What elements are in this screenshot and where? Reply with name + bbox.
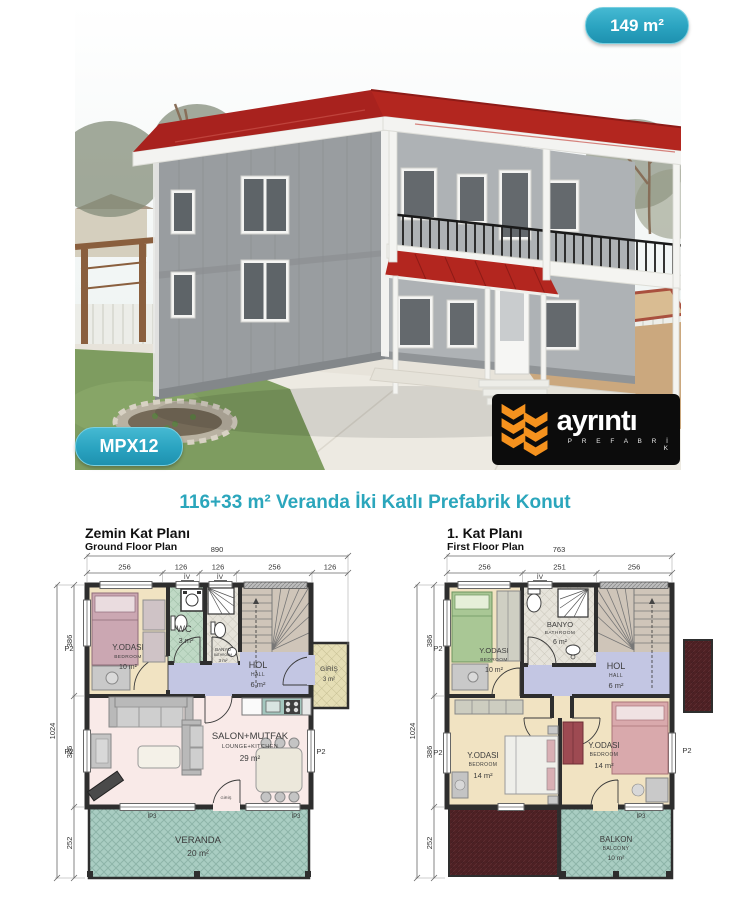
brand-subtitle: P R E F A B R İ K xyxy=(557,439,672,452)
ff-roof-strip xyxy=(449,809,558,876)
svg-text:256: 256 xyxy=(628,563,641,572)
svg-text:P2: P2 xyxy=(64,644,73,653)
svg-text:BANYO: BANYO xyxy=(547,620,573,629)
svg-text:BEDROOM: BEDROOM xyxy=(590,752,619,758)
svg-text:BEDROOM: BEDROOM xyxy=(114,654,142,660)
svg-text:GİRİŞ: GİRİŞ xyxy=(320,664,338,673)
svg-text:20 m²: 20 m² xyxy=(187,848,209,858)
house-body xyxy=(133,90,681,406)
svg-text:HALL: HALL xyxy=(251,672,265,678)
gf-hatched-wall xyxy=(244,582,307,589)
gf-total-height: 1024 xyxy=(48,723,57,740)
floor-plans: 890 256 126 126 256 126 1024 386 386 252… xyxy=(0,525,750,900)
svg-text:P2: P2 xyxy=(433,644,442,653)
svg-text:BEDROOM: BEDROOM xyxy=(480,657,508,663)
svg-text:İV: İV xyxy=(217,572,224,581)
svg-text:BANYO: BANYO xyxy=(215,647,231,652)
svg-text:HOL: HOL xyxy=(249,660,268,670)
svg-text:LOUNGE+KITCHEN: LOUNGE+KITCHEN xyxy=(222,744,278,750)
ff-roof-porch xyxy=(684,640,712,712)
svg-text:BEDROOM: BEDROOM xyxy=(469,762,498,768)
svg-text:BATHROOM: BATHROOM xyxy=(545,630,576,636)
brand-logo: ayrıntı P R E F A B R İ K xyxy=(492,394,680,465)
svg-text:29 m²: 29 m² xyxy=(240,754,261,763)
svg-text:14 m²: 14 m² xyxy=(473,771,493,780)
svg-text:3 m²: 3 m² xyxy=(179,636,195,645)
ff-hatched-wall xyxy=(600,582,668,589)
page-title: 116+33 m² Veranda İki Katlı Prefabrik Ko… xyxy=(0,492,750,514)
gf-porch-door-gap xyxy=(307,655,315,685)
svg-text:251: 251 xyxy=(553,563,566,572)
svg-text:P2: P2 xyxy=(316,747,325,756)
corner-trim xyxy=(381,126,389,357)
svg-text:BALCONY: BALCONY xyxy=(603,846,630,852)
svg-text:HALL: HALL xyxy=(609,673,623,679)
svg-text:252: 252 xyxy=(425,837,434,850)
chevrons-icon xyxy=(500,402,551,458)
svg-text:HOL: HOL xyxy=(607,661,626,671)
svg-text:14 m²: 14 m² xyxy=(594,761,614,770)
svg-text:BATHROOM: BATHROOM xyxy=(214,653,233,657)
ff-total-height: 1024 xyxy=(408,723,417,740)
svg-text:BALKON: BALKON xyxy=(600,835,633,844)
svg-text:10 m²: 10 m² xyxy=(485,667,504,674)
ff-balcony-door-gap xyxy=(593,803,618,811)
svg-text:126: 126 xyxy=(212,563,225,572)
brand-name: ayrıntı xyxy=(557,407,672,436)
svg-text:P2: P2 xyxy=(433,748,442,757)
svg-text:6 m²: 6 m² xyxy=(609,681,625,690)
svg-text:Y.ODASI: Y.ODASI xyxy=(467,751,498,760)
area-badge: 149 m² xyxy=(585,7,689,44)
model-badge: MPX12 xyxy=(75,427,183,466)
svg-text:WC: WC xyxy=(177,624,192,634)
svg-text:126: 126 xyxy=(324,563,337,572)
svg-text:10 m²: 10 m² xyxy=(608,855,625,862)
svg-text:256: 256 xyxy=(118,563,131,572)
gf-door-label: GİRİŞ xyxy=(221,795,232,800)
svg-text:Y.ODASI: Y.ODASI xyxy=(588,741,619,750)
svg-text:P2: P2 xyxy=(64,747,73,756)
svg-text:Y.ODASI: Y.ODASI xyxy=(479,646,508,655)
ff-total-width: 763 xyxy=(553,545,566,554)
ground-floor-plan: 890 256 126 126 256 126 1024 386 386 252… xyxy=(48,545,351,881)
svg-text:İP3: İP3 xyxy=(291,813,301,820)
svg-text:İP3: İP3 xyxy=(147,813,157,820)
svg-text:6 m²: 6 m² xyxy=(553,639,568,646)
gf-veranda-door-gap xyxy=(213,803,240,811)
svg-text:İV: İV xyxy=(537,572,544,581)
svg-text:İV: İV xyxy=(184,572,191,581)
svg-text:252: 252 xyxy=(65,837,74,850)
gf-entrance-porch xyxy=(311,643,348,708)
dining-table xyxy=(256,748,302,792)
svg-text:6 m²: 6 m² xyxy=(251,680,267,689)
svg-text:256: 256 xyxy=(268,563,281,572)
svg-text:3 m²: 3 m² xyxy=(219,658,229,663)
svg-text:10 m²: 10 m² xyxy=(119,664,138,671)
svg-text:126: 126 xyxy=(175,563,188,572)
svg-text:3 m²: 3 m² xyxy=(323,677,335,683)
svg-text:İP3: İP3 xyxy=(636,813,646,820)
gf-total-width: 890 xyxy=(211,545,224,554)
svg-text:VERANDA: VERANDA xyxy=(175,835,222,846)
svg-text:P2: P2 xyxy=(682,746,691,755)
svg-text:SALON+MUTFAK: SALON+MUTFAK xyxy=(212,731,289,742)
svg-text:256: 256 xyxy=(478,563,491,572)
svg-text:Y.ODASI: Y.ODASI xyxy=(112,643,143,652)
first-floor-plan: 763 256 251 256 1024 386 386 252 Y.ODASI… xyxy=(408,545,712,881)
flyer-page: 149 m² MPX12 ayrıntı P R E F A B R İ K 1… xyxy=(0,0,750,900)
